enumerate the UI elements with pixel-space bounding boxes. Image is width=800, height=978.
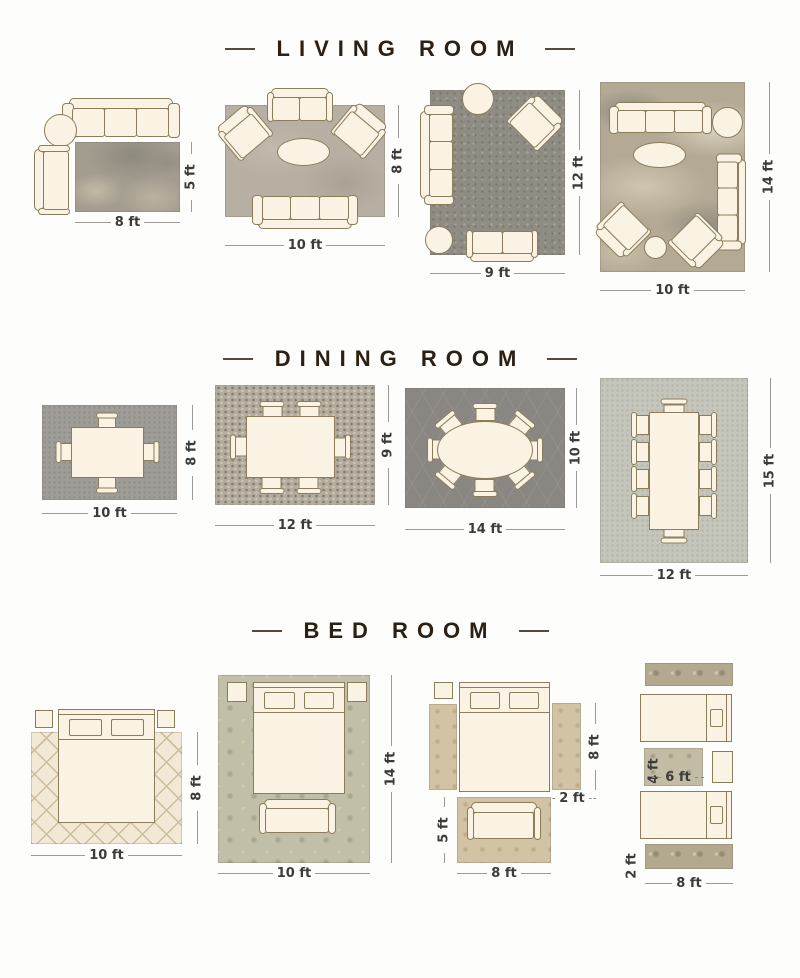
round-side-table [462, 83, 494, 115]
dining-chair [699, 493, 717, 519]
bed [459, 682, 550, 792]
foot-rug-height-dimension: 5 ft [436, 797, 452, 863]
rug-width-dimension: 8 ft [75, 215, 180, 230]
dining-chair [631, 412, 649, 438]
nightstand [712, 751, 733, 783]
rug-height-dimension: 8 ft [184, 405, 200, 500]
rug-height-dimension: 9 ft [380, 385, 396, 505]
nightstand [434, 682, 453, 699]
nightstand [347, 682, 367, 702]
rug-height-dimension: 14 ft [383, 675, 399, 863]
section-title-text: DINING ROOM [275, 346, 526, 372]
loveseat [466, 230, 538, 262]
dining-chair [631, 493, 649, 519]
three-seat-sofa [609, 102, 712, 134]
nightstand [227, 682, 247, 702]
round-side-table [425, 226, 453, 254]
dining-chair [699, 412, 717, 438]
title-dash-left [252, 630, 282, 633]
three-seat-sofa [252, 195, 358, 229]
bench [259, 799, 336, 834]
rug-height-dimension: 15 ft [762, 378, 778, 563]
dining-chair [699, 466, 717, 492]
rug-width-dimension: 9 ft [430, 266, 565, 281]
twin-bed [640, 791, 732, 839]
dining-chair [473, 479, 498, 497]
rug-width-dimension: 12 ft [600, 568, 748, 583]
title-dash-left [223, 358, 253, 361]
rug-height-dimension: 8 ft [390, 105, 406, 217]
dining-chair [631, 439, 649, 465]
rug-width-dimension: 10 ft [31, 848, 182, 863]
round-side-table [712, 107, 743, 138]
twin-bed [640, 694, 732, 742]
dining-chair [333, 435, 351, 460]
rug-height-dimension: 12 ft [571, 90, 587, 255]
rug-width-dimension: 14 ft [405, 522, 565, 537]
runner-width-dimension: 8 ft [645, 876, 733, 891]
dining-chair [297, 476, 322, 494]
rug [75, 142, 180, 212]
section-title-bed-room: BED ROOM [0, 618, 800, 644]
dining-table [649, 412, 699, 530]
rug-width-dimension: 10 ft [218, 866, 370, 881]
rug-size-guide-infographic: LIVING ROOM 8 ft 5 ft [0, 0, 800, 978]
dining-chair [260, 476, 285, 494]
dining-chair [143, 441, 160, 463]
loveseat [267, 88, 333, 122]
runner-rug-right [552, 703, 581, 790]
middle-rug-width-dimension: 6 ft [652, 770, 704, 785]
rug-width-dimension: 10 ft [600, 283, 745, 298]
runner-rug-top [645, 663, 733, 686]
three-seat-sofa [420, 105, 454, 205]
runner-height-dimension: 2 ft [624, 843, 640, 870]
oval-coffee-table [277, 138, 330, 166]
runner-height-dimension: 8 ft [587, 703, 603, 790]
bed [253, 682, 345, 794]
bed [58, 709, 155, 823]
title-dash-right [519, 630, 549, 633]
rug-height-dimension: 14 ft [761, 82, 777, 272]
section-title-text: LIVING ROOM [277, 36, 524, 62]
runner-rug-bottom [645, 844, 733, 869]
oval-coffee-table [633, 142, 686, 168]
runner-width-dimension: 2 ft [548, 791, 596, 806]
section-title-dining-room: DINING ROOM [0, 346, 800, 372]
bench [467, 802, 541, 840]
foot-rug-width-dimension: 8 ft [457, 866, 551, 881]
chaise [34, 145, 70, 215]
title-dash-left [225, 48, 255, 51]
rug-width-dimension: 12 ft [215, 518, 375, 533]
dining-chair [96, 477, 118, 494]
nightstand [157, 710, 175, 728]
title-dash-right [545, 48, 575, 51]
title-dash-right [547, 358, 577, 361]
round-side-table [644, 236, 667, 259]
section-title-text: BED ROOM [304, 618, 497, 644]
rug-height-dimension: 5 ft [183, 142, 199, 212]
oval-dining-table [437, 421, 533, 479]
section-title-living-room: LIVING ROOM [0, 36, 800, 62]
rug-width-dimension: 10 ft [42, 506, 177, 521]
rug-width-dimension: 10 ft [225, 238, 385, 253]
runner-rug-left [429, 704, 457, 790]
dining-table [246, 416, 335, 478]
rug-height-dimension: 8 ft [189, 732, 205, 844]
dining-table [71, 427, 144, 478]
three-seat-sofa [62, 98, 180, 138]
dining-chair [631, 466, 649, 492]
dining-chair [56, 441, 73, 463]
nightstand [35, 710, 53, 728]
dining-chair [699, 439, 717, 465]
dining-chair [473, 403, 498, 421]
round-side-table [44, 114, 77, 147]
rug-height-dimension: 10 ft [568, 388, 584, 508]
